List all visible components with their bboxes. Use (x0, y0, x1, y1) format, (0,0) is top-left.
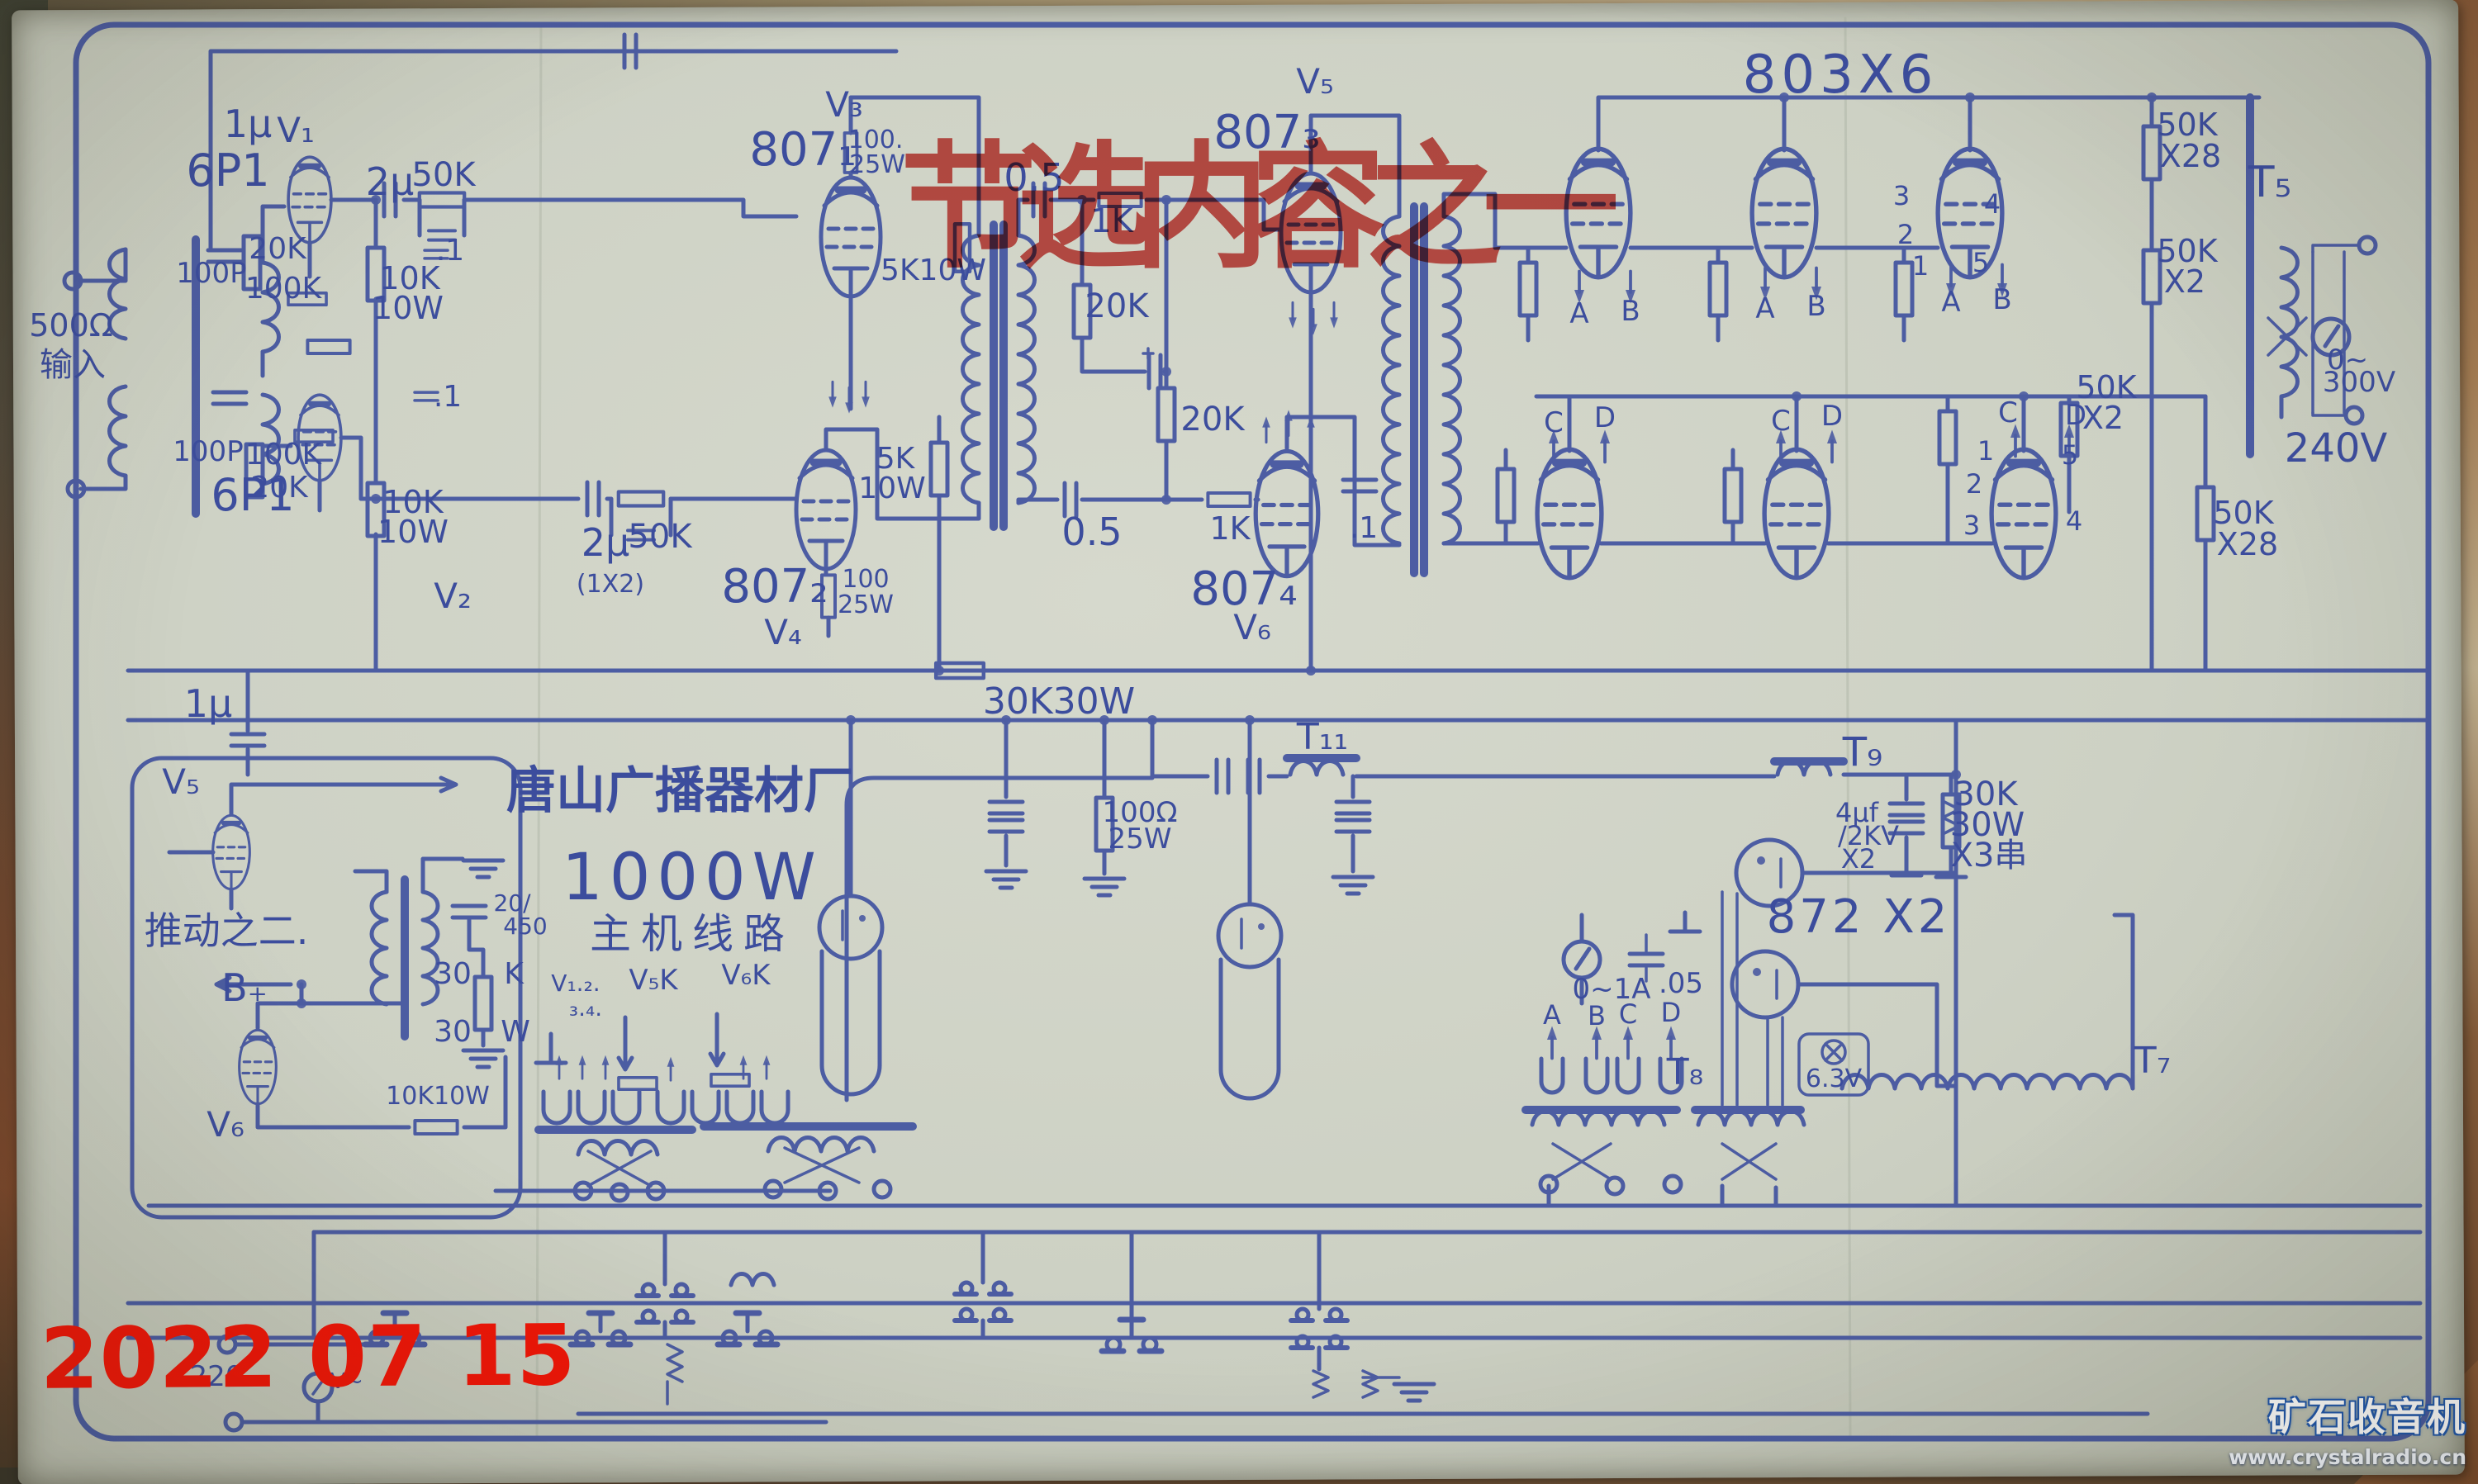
input-stage (64, 35, 896, 514)
coupling-networks (361, 183, 796, 671)
site-watermark: 矿石收音机 www.crystalradio.cn (2229, 1387, 2466, 1469)
filament-subdiagram (536, 1014, 913, 1201)
excerpt-overlay-text: 节选内容之一 (900, 97, 1599, 295)
site-watermark-name: 矿石收音机 (2229, 1387, 2466, 1442)
hv-rectifier-section (1356, 720, 2133, 1179)
site-watermark-url: www.crystalradio.cn (2229, 1445, 2466, 1469)
right-column (2061, 97, 2376, 671)
photo-of-schematic: 1μV₁6P12μ50K100P20K100K10K10W.1500Ω输入100… (0, 0, 2478, 1484)
meter-filament-group (1526, 913, 1700, 1194)
center-bottom-section (819, 720, 1373, 1100)
date-stamp: 2022 07 15 (40, 1306, 577, 1409)
inset-driver2 (132, 758, 520, 1217)
